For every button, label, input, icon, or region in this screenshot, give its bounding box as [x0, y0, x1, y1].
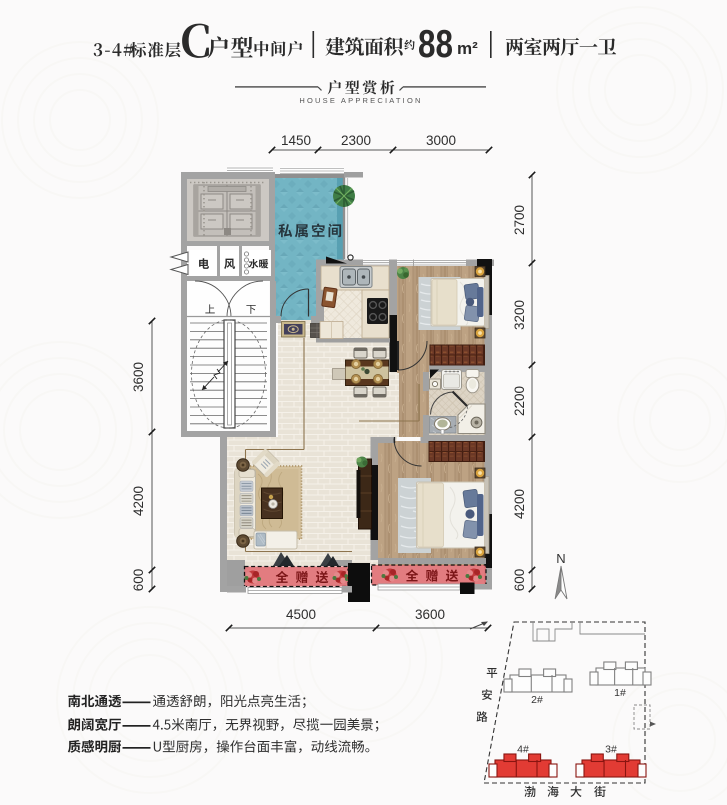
svg-text:3600: 3600 — [131, 362, 146, 392]
svg-text:3600: 3600 — [415, 607, 445, 622]
svg-text:2200: 2200 — [512, 386, 527, 416]
svg-text:3#: 3# — [605, 744, 617, 756]
svg-text:88: 88 — [418, 23, 453, 66]
svg-text:1#: 1# — [614, 687, 626, 699]
svg-text:m²: m² — [457, 39, 478, 58]
svg-text:2#: 2# — [531, 694, 543, 706]
svg-text:3200: 3200 — [512, 300, 527, 330]
svg-text:4200: 4200 — [131, 486, 146, 516]
svg-text:N: N — [556, 551, 565, 566]
svg-text:2700: 2700 — [512, 205, 527, 235]
svg-text:4200: 4200 — [512, 489, 527, 519]
svg-text:HOUSE APPRECIATION: HOUSE APPRECIATION — [299, 96, 422, 105]
svg-text:3000: 3000 — [426, 133, 456, 148]
svg-text:4#: 4# — [517, 744, 529, 756]
svg-text:4500: 4500 — [286, 607, 316, 622]
svg-text:2300: 2300 — [341, 133, 371, 148]
svg-text:600: 600 — [131, 569, 146, 592]
svg-text:600: 600 — [512, 569, 527, 592]
svg-text:1450: 1450 — [281, 133, 311, 148]
